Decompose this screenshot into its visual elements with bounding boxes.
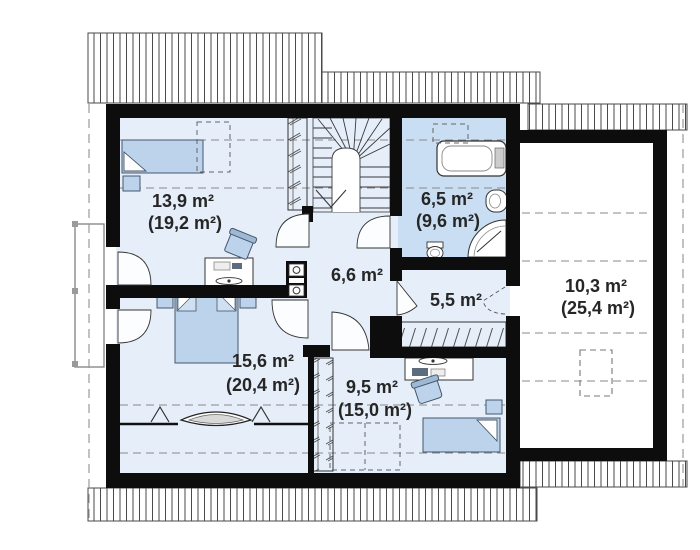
wall-interior: [120, 285, 288, 298]
floor-plan-page: 13,9 m² (19,2 m²) 6,5 m² (9,6 m²) 6,6 m²…: [0, 0, 700, 550]
label-attic-total: (25,4 m²): [561, 298, 635, 318]
wall-exterior-bottom: [106, 473, 520, 488]
balcony-post: [72, 288, 78, 294]
bathtub-tap: [495, 148, 504, 168]
chimney-vent-icon: [289, 264, 304, 296]
stair-core: [332, 148, 360, 212]
wall-exterior-left: [106, 104, 120, 247]
balcony-post: [72, 361, 78, 367]
wall-exterior-top: [106, 104, 520, 118]
label-room-middle-total: (15,0 m²): [338, 400, 412, 420]
wardrobe-corridor: [397, 322, 506, 347]
label-bathroom-total: (9,6 m²): [416, 211, 480, 231]
label-room-middle-area: 9,5 m²: [346, 377, 398, 397]
nightstand-icon: [486, 400, 502, 414]
wardrobe-bedroom-upper: [288, 118, 307, 210]
label-bedroom-lower-total: (20,4 m²): [226, 375, 300, 395]
wall-attic-bottom: [520, 448, 667, 461]
label-attic-area: 10,3 m²: [565, 276, 627, 296]
label-bedroom-upper-area: 13,9 m²: [152, 191, 214, 211]
ceiling-fan-icon: [419, 358, 447, 365]
label-hall-area: 6,6 m²: [331, 265, 383, 285]
balcony-post: [72, 221, 78, 227]
ceiling-fan-icon: [216, 278, 242, 285]
floor-plan: 13,9 m² (19,2 m²) 6,5 m² (9,6 m²) 6,6 m²…: [0, 0, 700, 550]
toilet-icon: [427, 242, 443, 260]
nightstand-icon: [123, 176, 140, 191]
label-bedroom-lower-area: 15,6 m²: [232, 351, 294, 371]
label-corridor-area: 5,5 m²: [430, 290, 482, 310]
wall-attic-top: [520, 130, 667, 143]
label-bathroom-area: 6,5 m²: [421, 189, 473, 209]
wall-exterior-right: [506, 104, 520, 286]
wall-attic-right: [653, 130, 667, 461]
label-bedroom-upper-total: (19,2 m²): [148, 213, 222, 233]
balcony: [72, 221, 104, 367]
